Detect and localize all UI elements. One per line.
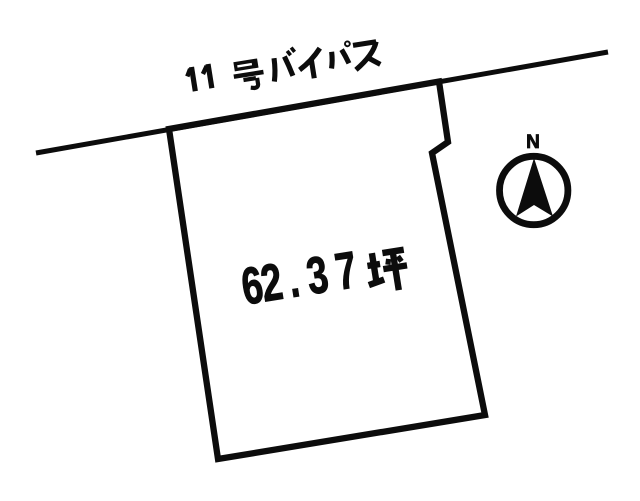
- svg-text:N: N: [526, 132, 540, 153]
- svg-text:62.37: 62.37: [237, 240, 361, 316]
